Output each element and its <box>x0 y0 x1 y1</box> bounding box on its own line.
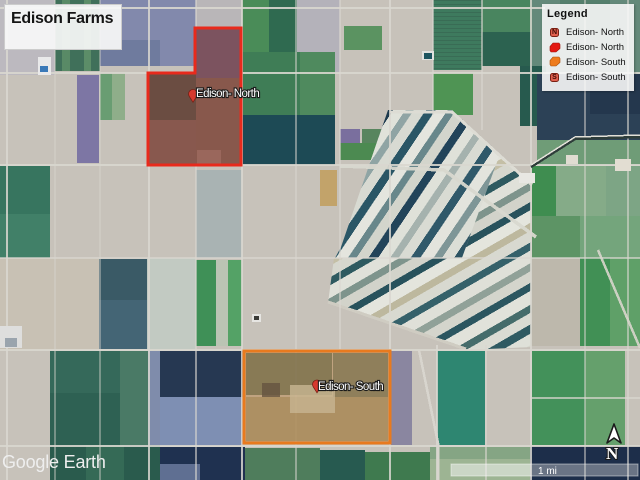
svg-text:N: N <box>606 444 619 463</box>
svg-text:Edison- South: Edison- South <box>318 381 383 393</box>
svg-text:Edison- North: Edison- North <box>196 88 259 100</box>
svg-text:1 mi: 1 mi <box>538 466 557 477</box>
svg-text:Google Earth: Google Earth <box>2 452 106 472</box>
